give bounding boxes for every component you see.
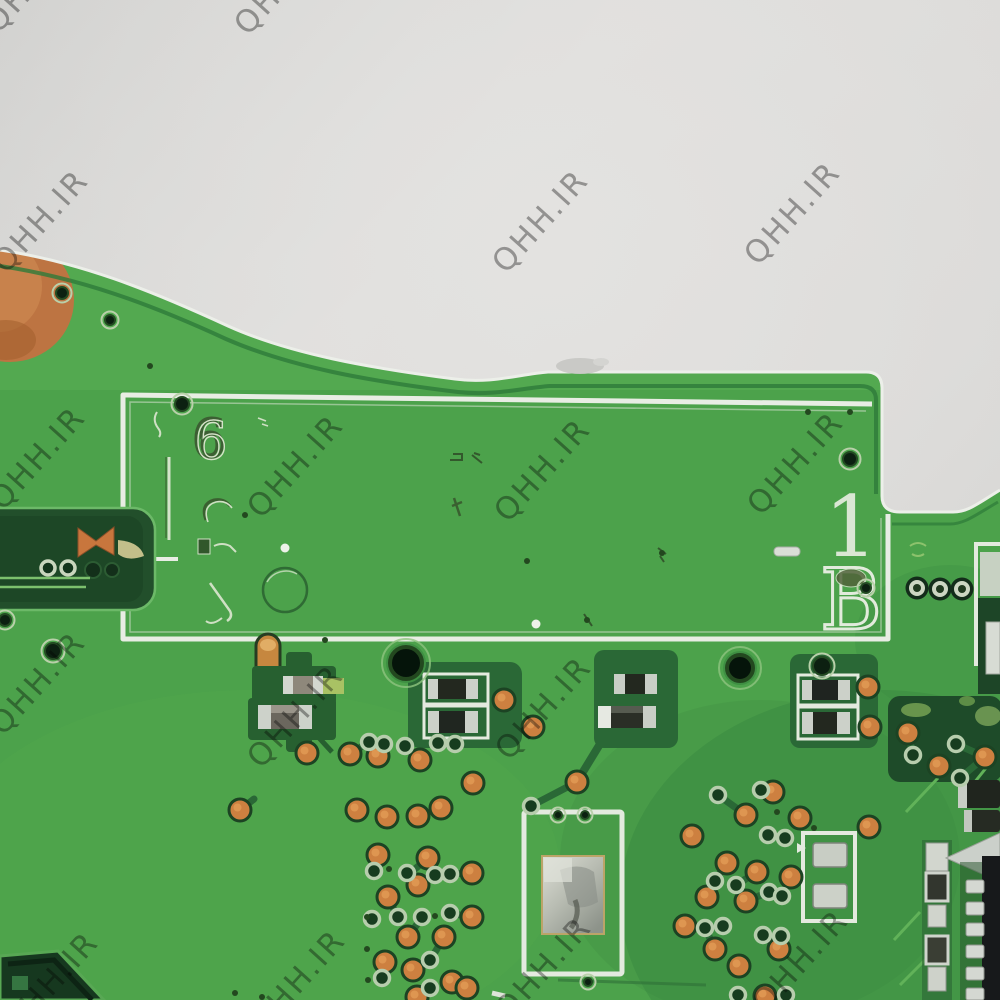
- copper-via-highlight: [381, 811, 389, 819]
- scuff-glow: [959, 696, 975, 706]
- cap-end: [645, 674, 657, 694]
- small-via: [443, 867, 458, 882]
- small-via: [953, 771, 968, 786]
- smd-cap-end: [964, 810, 972, 832]
- copper-via-highlight: [686, 830, 694, 838]
- cap-body: [439, 711, 465, 733]
- cap-body: [438, 679, 466, 699]
- copper-via-highlight: [751, 866, 759, 874]
- small-via: [428, 868, 443, 883]
- copper-via-highlight: [740, 895, 748, 903]
- small-via: [362, 735, 377, 750]
- copper-via-highlight: [862, 681, 870, 689]
- copper-via-highlight: [461, 982, 469, 990]
- copper-via-highlight: [234, 804, 242, 812]
- copper-via-highlight: [466, 867, 474, 875]
- resistor-end: [283, 676, 293, 694]
- copper-via-highlight: [422, 852, 430, 860]
- copper-via-highlight: [382, 891, 390, 899]
- ic-pin: [966, 945, 984, 958]
- connector-pad-hole: [105, 563, 119, 577]
- dark-speck: [659, 550, 665, 556]
- dark-speck: [584, 617, 590, 623]
- silkscreen-markings: 1 B: [820, 478, 882, 649]
- cap-end: [598, 706, 611, 728]
- cap-end: [838, 680, 850, 700]
- copper-via-highlight: [863, 821, 871, 829]
- copper-via-highlight: [902, 727, 910, 735]
- copper-via-highlight: [351, 804, 359, 812]
- small-via: [761, 828, 776, 843]
- copper-via-highlight: [498, 694, 506, 702]
- small-via: [448, 737, 463, 752]
- copper-via-highlight: [372, 849, 380, 857]
- dark-speck: [365, 977, 371, 983]
- dark-speck: [774, 809, 780, 815]
- ic-pin: [966, 923, 984, 936]
- cap-end: [428, 679, 438, 699]
- tinned-pad-highlight: [544, 858, 572, 882]
- small-via: [775, 889, 790, 904]
- drill-hole: [175, 397, 189, 411]
- copper-via-highlight: [794, 812, 802, 820]
- small-via: [698, 921, 713, 936]
- cap-body: [812, 680, 838, 700]
- smd-component: [926, 936, 948, 964]
- cap-end: [466, 679, 478, 699]
- copper-via-highlight: [414, 754, 422, 762]
- smd-component: [928, 905, 946, 927]
- copper-via-highlight: [301, 747, 309, 755]
- copper-via-highlight: [864, 721, 872, 729]
- small-via: [443, 906, 458, 921]
- marking-b: B: [820, 551, 882, 649]
- test-pad-center: [936, 585, 944, 593]
- copper-via-highlight: [701, 891, 709, 899]
- cap-end: [643, 706, 656, 728]
- small-via: [367, 864, 382, 879]
- copper-via-highlight: [412, 810, 420, 818]
- ic-body: [982, 856, 1000, 1000]
- copper-via-highlight: [571, 776, 579, 784]
- dark-speck: [364, 914, 370, 920]
- ic-pin: [966, 880, 984, 893]
- small-via: [708, 874, 723, 889]
- copper-via-highlight: [467, 777, 475, 785]
- connector-metal-bar: [986, 622, 1000, 674]
- copper-via-highlight: [785, 871, 793, 879]
- edge-connector-pad: [0, 508, 155, 610]
- small-via: [906, 748, 921, 763]
- copper-via-highlight: [733, 960, 741, 968]
- white-speck: [532, 620, 541, 629]
- drill-hole: [861, 583, 871, 593]
- connector-via: [41, 561, 55, 575]
- connector-light-block: [980, 552, 1000, 596]
- dark-speck: [147, 363, 153, 369]
- small-via: [431, 736, 446, 751]
- test-pad-center: [913, 584, 921, 592]
- cap-end: [428, 711, 439, 733]
- copper-via-highlight: [740, 809, 748, 817]
- small-via: [391, 910, 406, 925]
- edge-debris-blob-small: [593, 358, 609, 366]
- scuff-glow: [901, 703, 931, 717]
- small-via: [415, 910, 430, 925]
- drill-hole: [584, 978, 592, 986]
- small-via: [729, 878, 744, 893]
- scratch-mark: [198, 539, 210, 554]
- pcb-photo: 6 6 1 B: [0, 0, 1000, 1000]
- small-via: [711, 788, 726, 803]
- connector-via: [61, 561, 75, 575]
- small-via: [375, 971, 390, 986]
- cap-end: [802, 680, 812, 700]
- smd-component: [926, 843, 948, 871]
- drill-hole: [0, 614, 11, 626]
- connector-pour-inner: [0, 516, 143, 602]
- copper-via-highlight: [466, 911, 474, 919]
- test-pad-center: [958, 585, 966, 593]
- small-via: [423, 981, 438, 996]
- small-via: [949, 737, 964, 752]
- ic-pin: [966, 902, 984, 915]
- cap-body: [625, 674, 645, 694]
- small-via: [423, 953, 438, 968]
- scratch-digit-highlight: 6: [194, 412, 227, 472]
- mounting-hole: [390, 647, 422, 679]
- small-via: [756, 928, 771, 943]
- copper-via-highlight: [344, 748, 352, 756]
- ic-pin: [966, 967, 984, 980]
- small-via: [398, 739, 413, 754]
- dark-speck: [524, 558, 530, 564]
- pcb-photo-canvas: 6 6 1 B: [0, 0, 1000, 1000]
- copper-via-highlight: [379, 956, 387, 964]
- dark-speck: [386, 866, 392, 872]
- small-via: [377, 737, 392, 752]
- small-via: [778, 831, 793, 846]
- copper-via-highlight: [721, 857, 729, 865]
- cap-end: [837, 712, 850, 734]
- mounting-hole: [727, 655, 753, 681]
- drill-hole: [56, 287, 68, 299]
- dark-speck: [432, 913, 438, 919]
- small-via: [400, 866, 415, 881]
- copper-via-highlight: [435, 802, 443, 810]
- drill-hole: [554, 811, 562, 819]
- copper-via-highlight: [438, 931, 446, 939]
- dark-speck: [811, 825, 817, 831]
- ic-pin: [966, 988, 984, 1000]
- dark-speck: [364, 946, 370, 952]
- copper-via-highlight: [446, 976, 454, 984]
- small-via: [716, 919, 731, 934]
- copper-via-highlight: [411, 991, 419, 999]
- connector-pad-hole: [85, 562, 101, 578]
- cap-end: [465, 711, 478, 733]
- drill-hole: [843, 452, 857, 466]
- cap-body-highlight: [611, 706, 643, 713]
- drill-hole: [813, 657, 831, 675]
- copper-via-highlight: [679, 920, 687, 928]
- dark-speck: [242, 512, 248, 518]
- test-pad-layer: [906, 577, 974, 601]
- silver-scuff: [774, 547, 800, 556]
- copper-via-highlight: [979, 751, 987, 759]
- smd-component: [928, 967, 946, 991]
- scuff-glow: [975, 706, 1000, 726]
- dark-speck: [232, 990, 238, 996]
- small-via: [754, 783, 769, 798]
- dark-speck: [805, 409, 811, 415]
- cap-body: [813, 712, 837, 734]
- cap-end: [802, 712, 813, 734]
- pour: [594, 650, 678, 748]
- solder-pad: [813, 843, 847, 867]
- copper-via-highlight: [933, 760, 941, 768]
- cap-end: [614, 674, 625, 694]
- white-speck: [281, 544, 290, 553]
- capsule-highlight: [260, 639, 276, 651]
- small-via: [731, 988, 746, 1000]
- dark-speck: [322, 637, 328, 643]
- copper-via-highlight: [709, 943, 717, 951]
- drill-hole: [105, 315, 115, 325]
- smd-component: [926, 873, 948, 901]
- dark-speck: [847, 409, 853, 415]
- copper-via-highlight: [407, 964, 415, 972]
- small-via: [524, 799, 539, 814]
- small-via: [774, 929, 789, 944]
- copper-via-highlight: [402, 931, 410, 939]
- drill-hole: [581, 811, 589, 819]
